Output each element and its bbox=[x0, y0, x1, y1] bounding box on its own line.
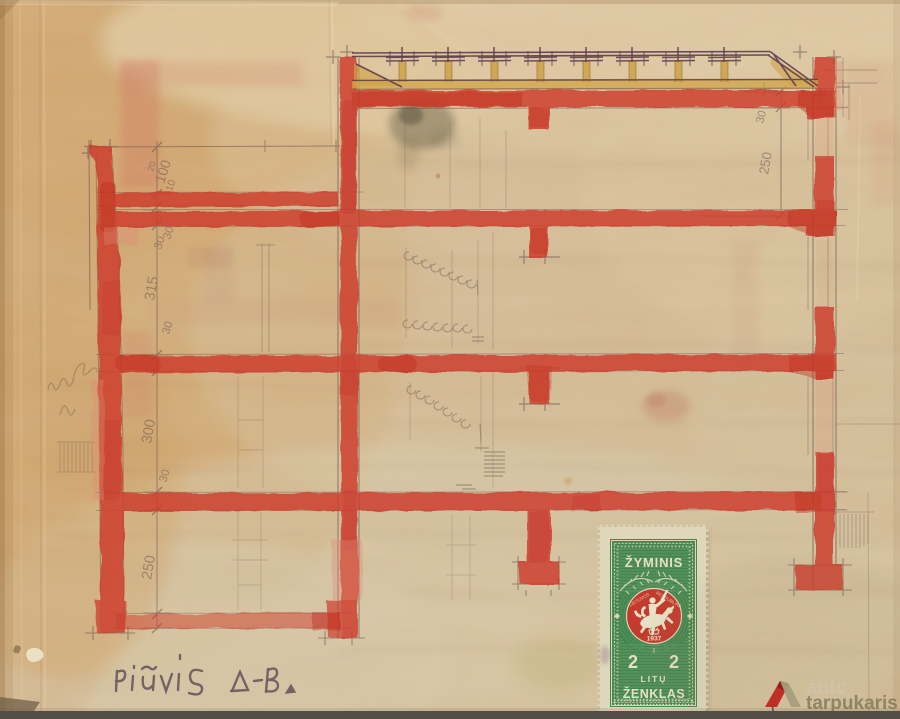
svg-text:2: 2 bbox=[628, 652, 638, 672]
svg-text:ŽYMINIS: ŽYMINIS bbox=[625, 555, 683, 570]
